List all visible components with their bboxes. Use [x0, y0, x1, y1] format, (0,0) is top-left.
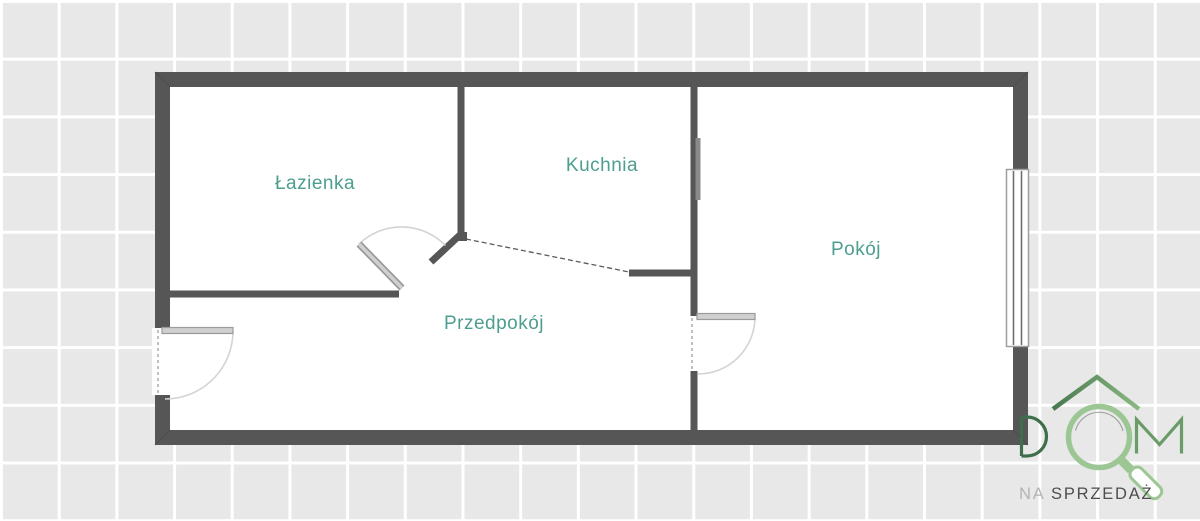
- room-label-lazienka: Łazienka: [275, 173, 355, 195]
- outer-walls: [155, 72, 1028, 445]
- room-label-kuchnia: Kuchnia: [566, 155, 638, 177]
- floorplan-drawing: [0, 0, 1200, 521]
- logo-tagline: NA SPRZEDAŻ: [1019, 485, 1153, 504]
- logo-letter-m: [1137, 420, 1182, 454]
- logo-tagline-main: SPRZEDAŻ: [1051, 485, 1153, 503]
- logo-tagline-prefix: NA: [1019, 485, 1045, 503]
- room-label-przedpokoj: Przedpokój: [444, 313, 544, 335]
- floorplan-canvas: Łazienka Kuchnia Pokój Przedpokój NA SPR…: [0, 0, 1200, 521]
- logo-dom-na-sprzedaz: [1022, 377, 1182, 501]
- window: [1007, 170, 1029, 347]
- room-label-pokoj: Pokój: [831, 239, 881, 261]
